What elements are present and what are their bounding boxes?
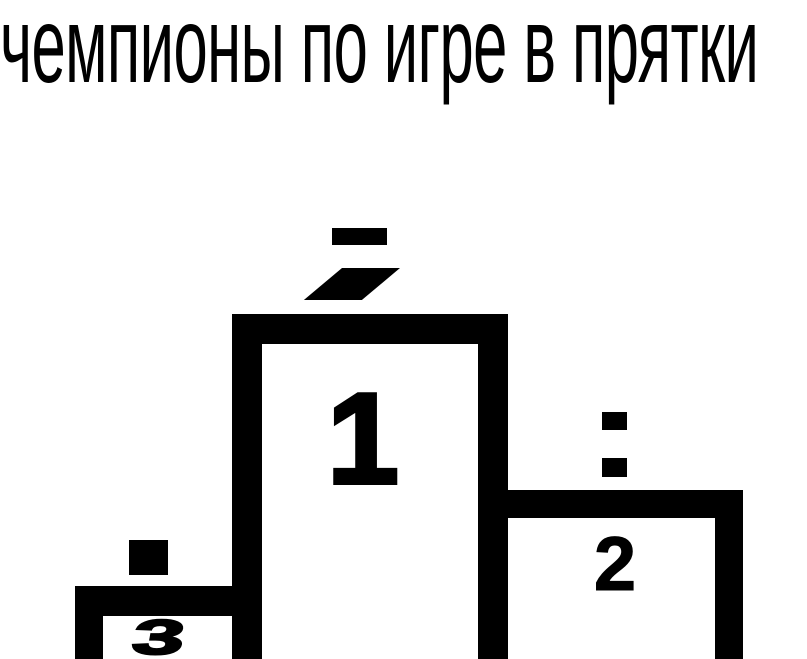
- rank-3-label: 3: [128, 614, 188, 659]
- hidden-champion-eye-bottom-icon: [602, 458, 627, 477]
- hidden-champion-eye-top-icon: [602, 412, 627, 430]
- hidden-champion-hat-dash-icon: [332, 228, 387, 245]
- hidden-champion-visor-icon: [304, 268, 400, 300]
- hidden-champion-head-icon: [129, 540, 168, 575]
- rank-1-label: 1: [327, 375, 399, 504]
- meme-canvas: чемпионы по игре в прятки 1 2 3: [0, 0, 807, 659]
- rank-2-label: 2: [594, 527, 636, 603]
- page-title: чемпионы по игре в прятки: [0, 0, 758, 99]
